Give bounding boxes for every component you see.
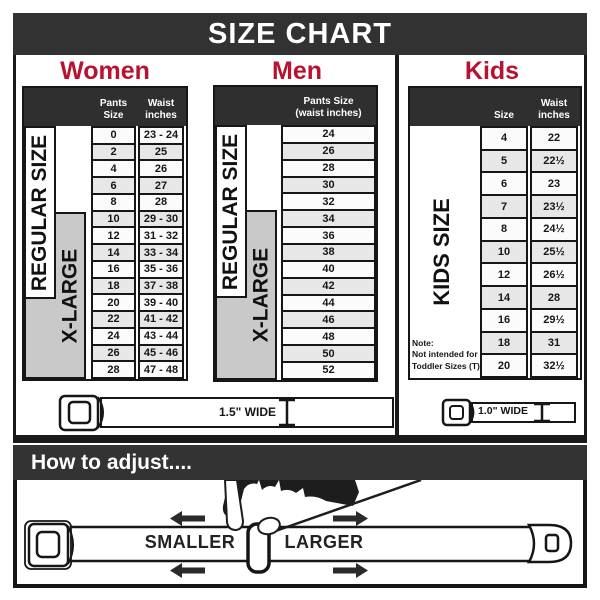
waist-cell: 47 - 48: [138, 360, 184, 379]
men-section-title: Men: [217, 58, 377, 85]
size-cell: 5: [480, 149, 528, 174]
kids-col-waist: Waist inches: [530, 98, 578, 122]
arrow-right-icon: [333, 563, 368, 578]
waist-cell: 25½: [530, 240, 578, 265]
women-section-title: Women: [25, 58, 185, 85]
women-waist-column: 23 - 24 25 26 27 28 29 - 30 31 - 32 33 -…: [138, 126, 184, 379]
kids-table-body: KIDS SIZE Note: Not intended for Toddler…: [410, 126, 580, 378]
size-cell: 14: [480, 285, 528, 310]
waist-cell: 29½: [530, 308, 578, 333]
arrow-left-icon: [170, 563, 205, 578]
adult-belt-width-label: 1.5" WIDE: [200, 404, 295, 420]
women-regular-label: REGULAR SIZE: [28, 134, 52, 290]
women-xlarge-label-wrap: X-LARGE: [54, 212, 86, 379]
waist-cell: 23: [530, 171, 578, 196]
size-cell: 10: [480, 240, 528, 265]
size-cell: 8: [480, 217, 528, 242]
kids-size-column: 4 5 6 7 8 10 12 14 16 18 20: [480, 126, 528, 378]
size-chart-page: SIZE CHART Women Men Kids Pants Size Wai…: [0, 0, 600, 600]
size-chart-title-bar: SIZE CHART: [13, 13, 587, 55]
kids-waist-column: 22 22½ 23 23½ 24½ 25½ 26½ 28 29½ 31 32½: [530, 126, 578, 378]
women-col-waist: Waist inches: [138, 98, 184, 122]
how-to-adjust-header-bar: How to adjust....: [13, 445, 587, 480]
kids-table-header: Size Waist inches: [410, 88, 580, 126]
men-xlarge-label: X-LARGE: [249, 248, 273, 343]
size-cell: 16: [480, 308, 528, 333]
seatbelt-buckle-icon: [25, 521, 73, 569]
women-table-header: Pants Size Waist inches: [24, 88, 186, 126]
kids-section-title: Kids: [413, 58, 571, 85]
waist-cell: 24½: [530, 217, 578, 242]
size-cell: 4: [480, 126, 528, 151]
arrow-left-icon: [170, 511, 205, 526]
women-size-table: Pants Size Waist inches REGULAR SIZE X-L…: [22, 86, 188, 381]
belt-tip-icon: [529, 525, 571, 562]
page-title: SIZE CHART: [208, 18, 392, 51]
men-size-table: Pants Size (waist inches) REGULAR SIZE X…: [213, 85, 378, 382]
arrow-right-icon: [333, 511, 368, 526]
waist-cell: 22: [530, 126, 578, 151]
smaller-label: SMALLER: [130, 532, 250, 553]
pants-size-cell: 28: [91, 360, 136, 379]
men-col-pants-size: Pants Size (waist inches): [281, 96, 376, 120]
kids-col-size: Size: [480, 110, 528, 122]
women-table-body: REGULAR SIZE X-LARGE 0 2 4 6 8 10 12 14 …: [24, 126, 186, 379]
kids-size-table: Size Waist inches KIDS SIZE Note: Not in…: [408, 86, 582, 380]
size-cell: 6: [480, 171, 528, 196]
size-cell: 20: [480, 353, 528, 378]
men-table-header: Pants Size (waist inches): [215, 87, 376, 125]
men-regular-label-wrap: REGULAR SIZE: [215, 125, 247, 298]
women-xlarge-label: X-LARGE: [58, 248, 82, 343]
women-pants-size-column: 0 2 4 6 8 10 12 14 16 18 20 22 24 26 28: [91, 126, 136, 379]
men-kids-divider: [395, 55, 399, 443]
women-col-pants-size: Pants Size: [91, 98, 136, 122]
waist-cell: 28: [530, 285, 578, 310]
size-cell: 7: [480, 194, 528, 219]
size-cell: 12: [480, 262, 528, 287]
how-to-adjust-panel: SMALLER LARGER: [13, 480, 587, 588]
how-to-adjust-title: How to adjust....: [13, 451, 192, 475]
men-xlarge-label-wrap: X-LARGE: [245, 210, 277, 380]
women-regular-label-wrap: REGULAR SIZE: [24, 126, 56, 299]
size-cell: 18: [480, 331, 528, 356]
waist-cell: 31: [530, 331, 578, 356]
pants-size-cell: 52: [281, 361, 376, 380]
kids-size-label: KIDS SIZE: [429, 198, 455, 306]
kids-belt-width-label: 1.0" WIDE: [468, 404, 538, 419]
men-table-body: REGULAR SIZE X-LARGE 24 26 28 30 32 34 3…: [215, 125, 376, 380]
men-regular-label: REGULAR SIZE: [219, 133, 243, 289]
waist-cell: 23½: [530, 194, 578, 219]
men-pants-size-column: 24 26 28 30 32 34 36 38 40 42 44 46 48 5…: [281, 125, 376, 380]
waist-cell: 32½: [530, 353, 578, 378]
kids-note: Note: Not intended for Toddler Sizes (T): [412, 338, 480, 372]
waist-cell: 26½: [530, 262, 578, 287]
waist-cell: 22½: [530, 149, 578, 174]
larger-label: LARGER: [264, 532, 384, 553]
